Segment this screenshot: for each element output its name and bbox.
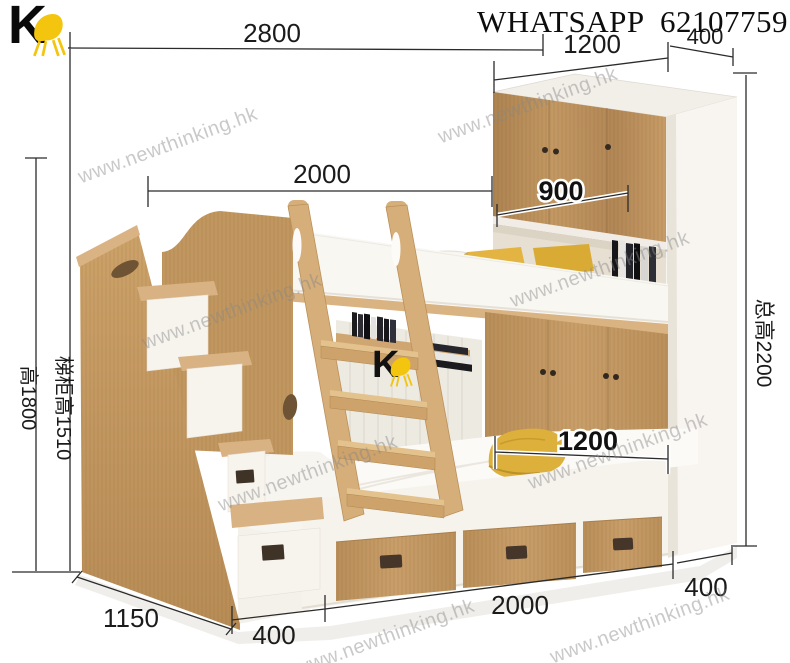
dim-label-2800: 2800 <box>243 18 301 48</box>
dim-label-900: 900 <box>538 176 583 206</box>
dim-label-1150: 1150 <box>103 603 159 633</box>
dim-label-stair-cabinet-height: 梯柜高1510 <box>52 356 75 461</box>
whatsapp-contact: WHATSAPP 62107759 <box>477 4 788 40</box>
dim-label-total-height: 总高2200 <box>752 299 775 388</box>
logo-chair-icon <box>388 356 414 388</box>
dim-label-2000-bottom: 2000 <box>491 590 549 620</box>
dim-label-400-br: 400 <box>684 572 727 602</box>
dimension-total-height: 总高2200 <box>733 73 775 546</box>
dim-label-height-1800: 高1800 <box>17 366 40 431</box>
dimension-bed-length: 2000 <box>148 159 492 207</box>
stair-storage <box>76 211 324 630</box>
dim-label-1200-bed: 1200 <box>558 426 618 456</box>
bunk-bed-diagram: 2800 1200 400 2000 900 总高2200 <box>0 0 790 663</box>
logo-chair-icon <box>30 12 68 58</box>
dim-label-400-bl: 400 <box>252 620 295 650</box>
dim-label-2000-mid: 2000 <box>293 159 351 189</box>
product-dimension-image: 2800 1200 400 2000 900 总高2200 <box>0 0 790 663</box>
brand-logo: K <box>8 0 78 60</box>
center-logo-watermark: K <box>372 348 432 398</box>
